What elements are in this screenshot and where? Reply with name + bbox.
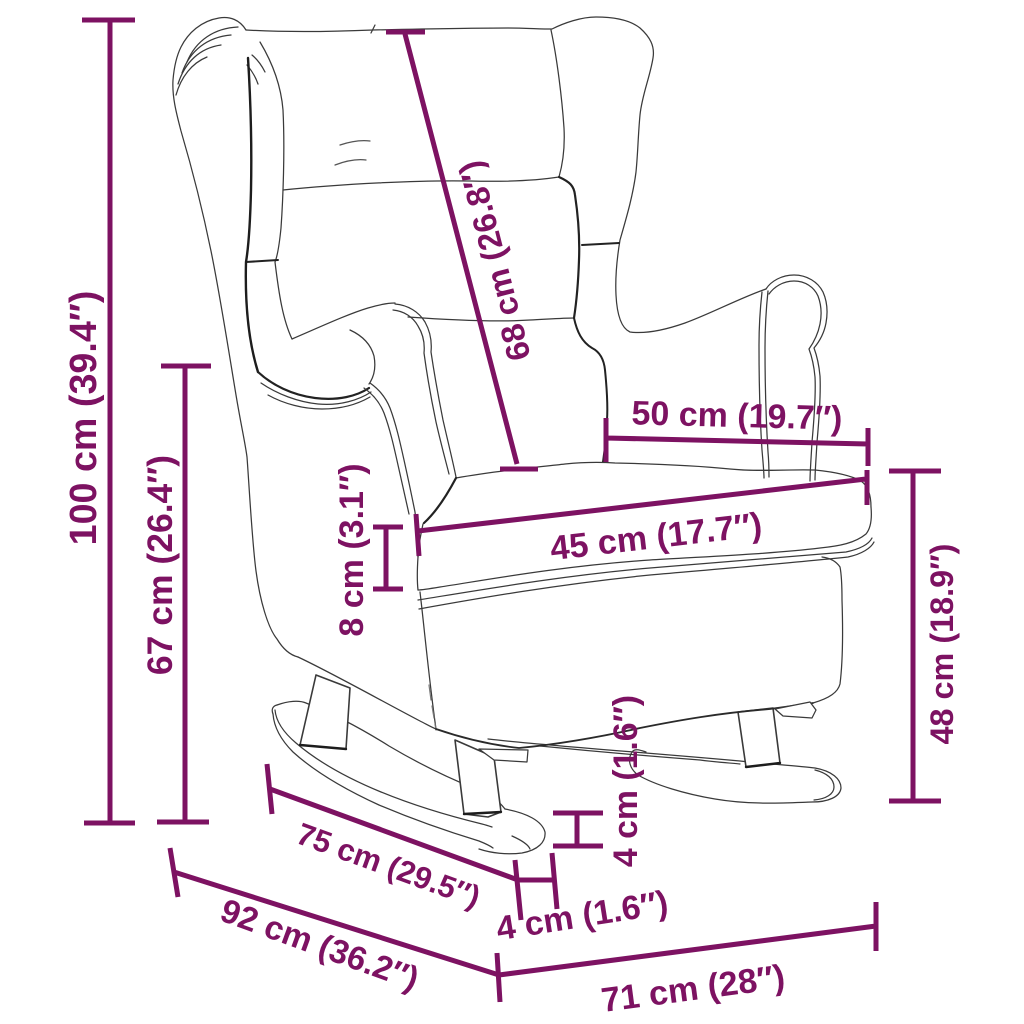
svg-text:67 cm (26.4″): 67 cm (26.4″) bbox=[140, 455, 180, 675]
svg-text:8 cm (3.1″): 8 cm (3.1″) bbox=[333, 463, 371, 636]
svg-text:4 cm (1.6″): 4 cm (1.6″) bbox=[607, 695, 645, 867]
svg-text:50 cm (19.7″): 50 cm (19.7″) bbox=[631, 394, 843, 438]
svg-text:100 cm (39.4″): 100 cm (39.4″) bbox=[62, 291, 104, 546]
svg-text:48 cm (18.9″): 48 cm (18.9″) bbox=[924, 544, 960, 745]
